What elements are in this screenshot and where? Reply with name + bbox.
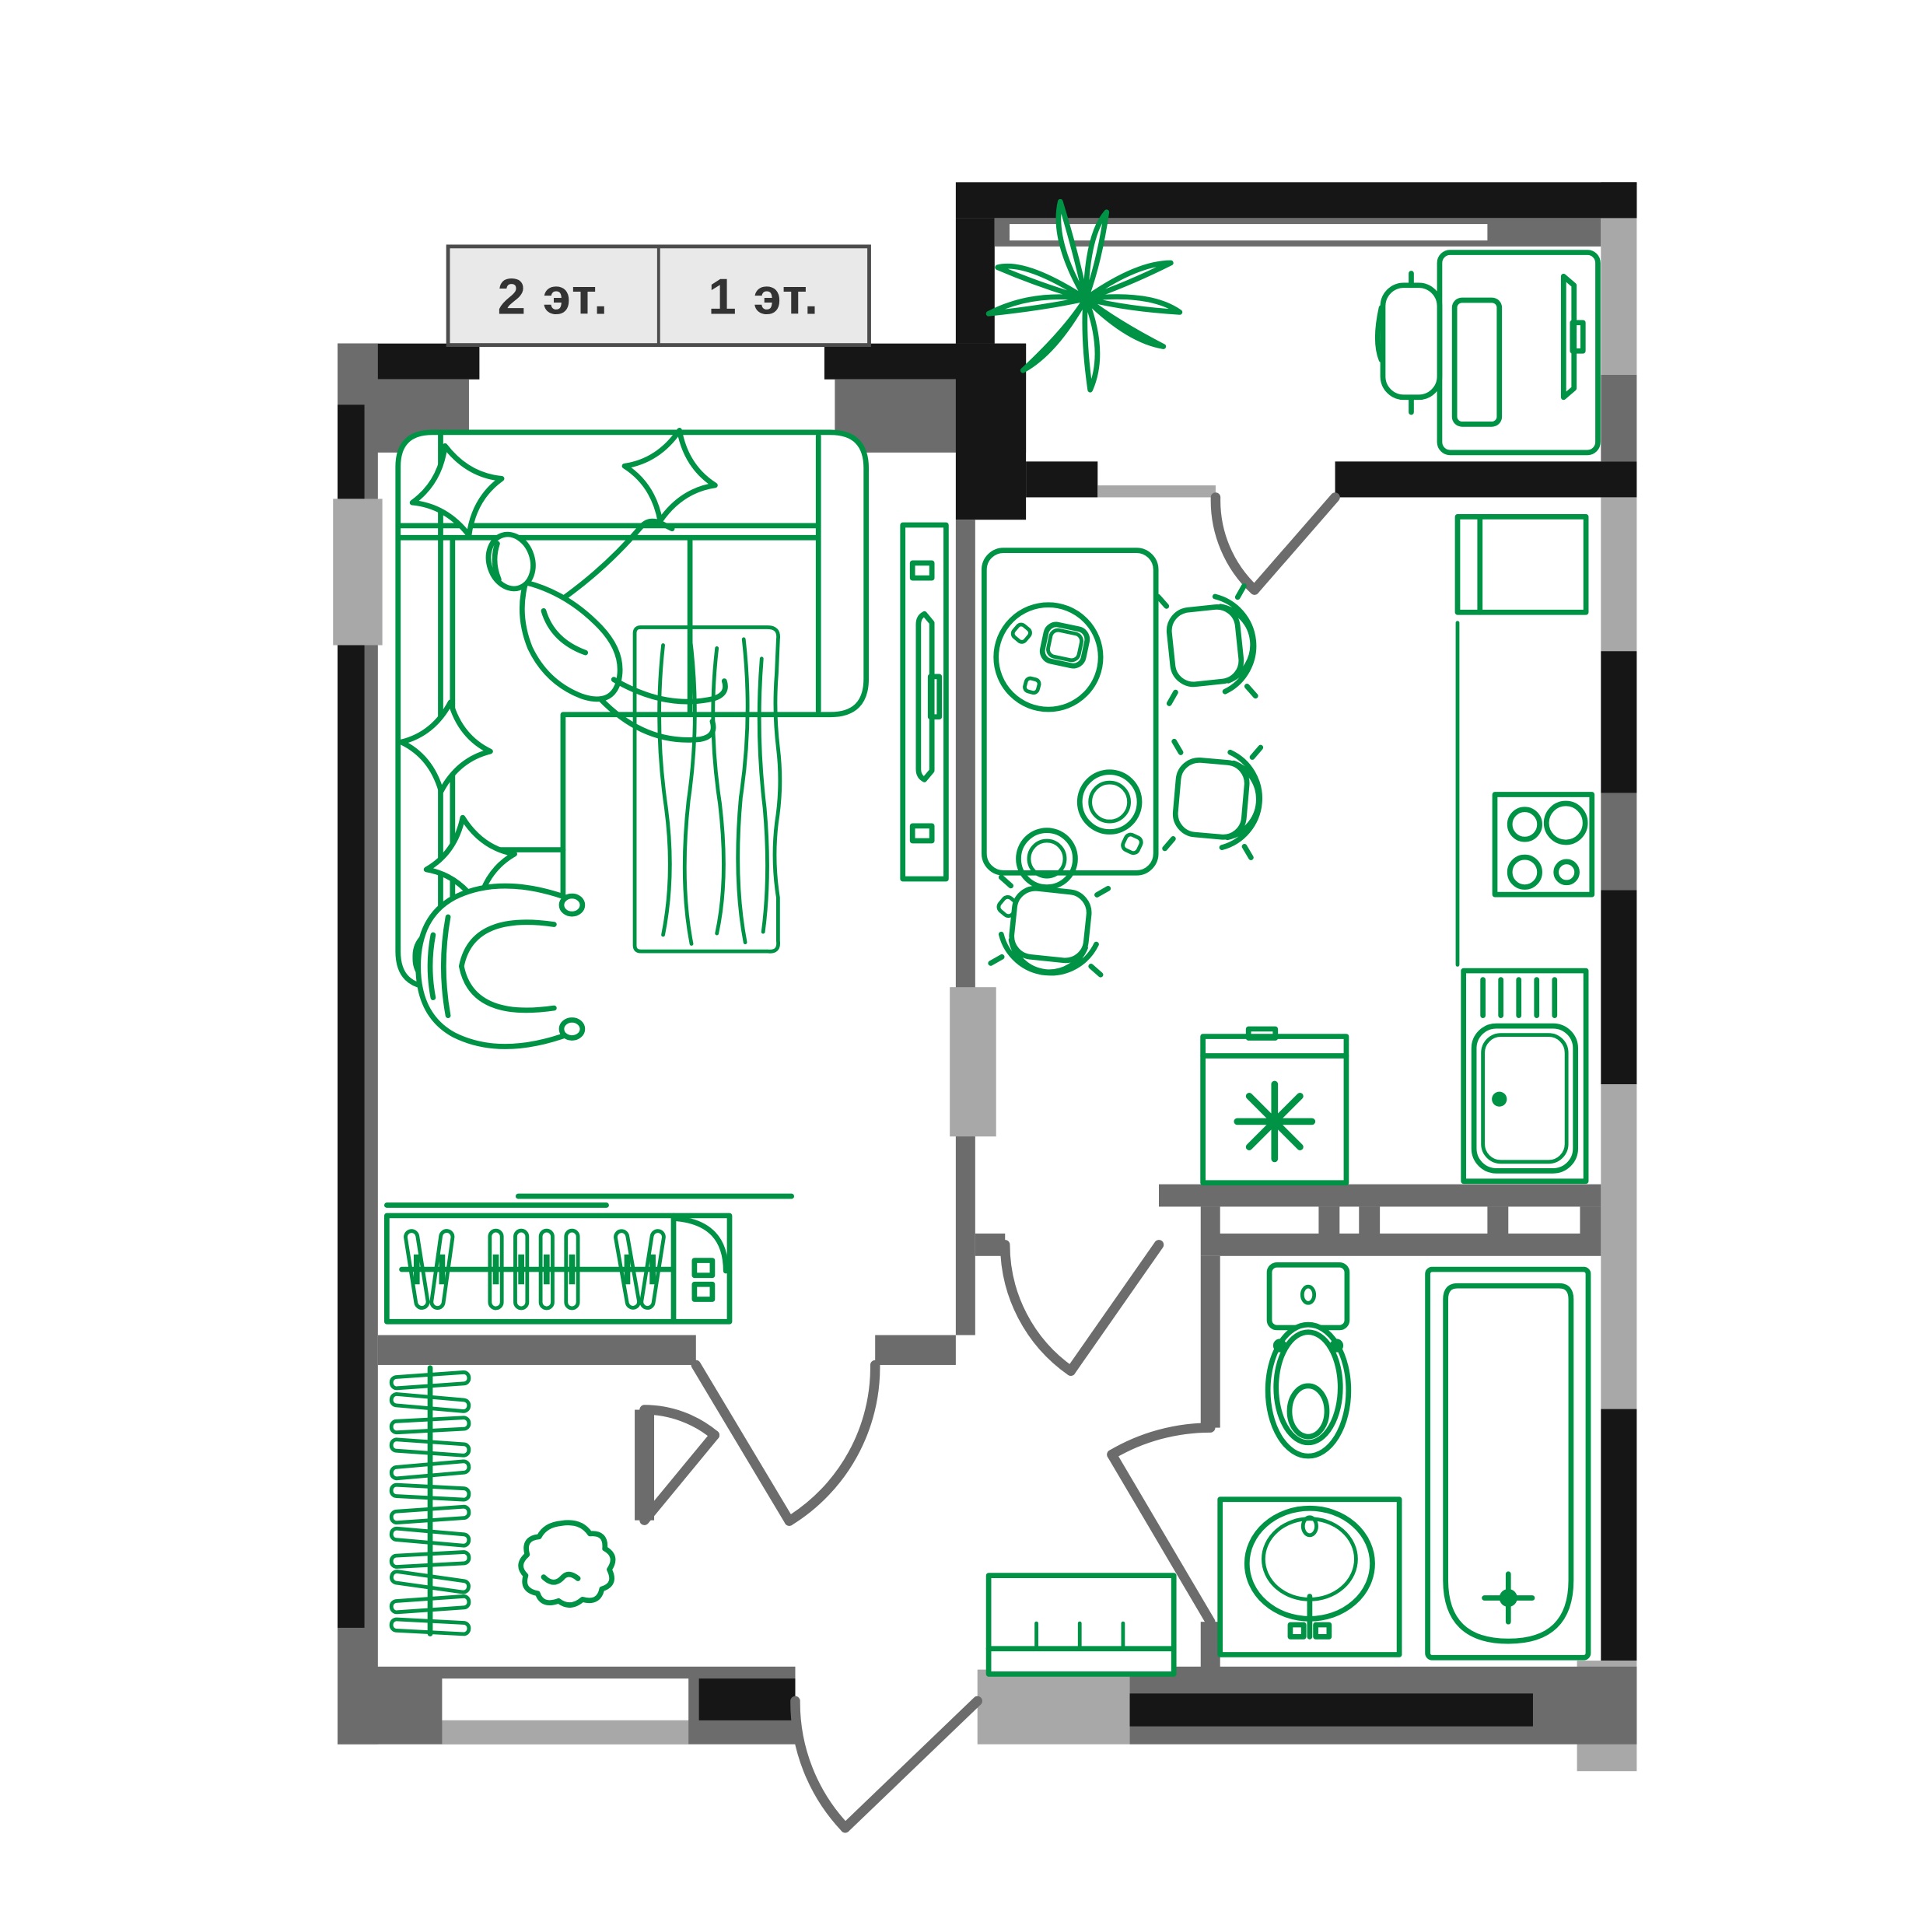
fridge: [1458, 516, 1586, 612]
bottom-left-sill: [442, 1720, 688, 1745]
partition-shaft-block: [950, 987, 996, 1136]
shaft-stub5: [1580, 1206, 1601, 1234]
right-wall-seg2: [1601, 793, 1636, 890]
closet-rack: [390, 1367, 469, 1633]
bathroom: [1220, 1265, 1587, 1657]
right-wall-seg1: [1601, 497, 1636, 651]
dining-table: [984, 550, 1156, 918]
bathroom-left-wall-upper: [1200, 1255, 1220, 1427]
right-wall-window2: [1601, 890, 1636, 1084]
kitchen-dining: [984, 516, 1591, 1182]
bottom-left-black: [698, 1678, 795, 1720]
kitchen-top-wall-left: [1026, 461, 1097, 497]
shaft-wall-upper: [1159, 1184, 1601, 1206]
kitchen-sink: [1463, 971, 1585, 1181]
pouf: [520, 1522, 612, 1605]
armchair: [418, 886, 582, 1046]
floor-plan-canvas: 2 эт. 1 эт.: [39, 39, 1894, 1894]
balcony-corner: [1601, 182, 1636, 218]
shaft-stub4: [1487, 1206, 1508, 1234]
right-wall-window3: [1601, 1409, 1636, 1661]
office-chair: [1377, 273, 1440, 412]
left-wall-black2: [338, 645, 365, 1627]
door-balcony: [1216, 497, 1335, 590]
door-closet: [644, 1409, 714, 1520]
shaft-stub1: [1200, 1206, 1220, 1234]
bottom-left-window: [442, 1678, 688, 1720]
washing-machine-star-icon: [1237, 1084, 1311, 1159]
floor-tab-2[interactable]: 2 эт.: [497, 268, 609, 324]
washing-machine: [1202, 1029, 1346, 1183]
balcony-wall-right-gray: [1601, 375, 1636, 461]
floor-selector: 2 эт. 1 эт.: [448, 247, 869, 345]
right-wall-seg3: [1601, 1084, 1636, 1409]
floor-tab-1[interactable]: 1 эт.: [708, 268, 820, 324]
balcony-wall-left: [956, 218, 995, 343]
door-entrance: [795, 1701, 977, 1828]
bathtub: [1427, 1269, 1587, 1657]
bathroom-top-wall: [1200, 1234, 1601, 1256]
balcony-desk: [1440, 252, 1598, 452]
entrance-threshold: [977, 1669, 1129, 1744]
stove: [1495, 794, 1592, 894]
door-kitchen-hall: [1005, 1244, 1159, 1370]
tv-unit: [902, 525, 946, 879]
shoe-bench: [989, 1575, 1174, 1674]
shaft-stub2: [1318, 1206, 1339, 1234]
bottom-right-black: [1129, 1693, 1532, 1726]
toilet: [1268, 1265, 1349, 1456]
living-bottom-wall-left: [378, 1335, 696, 1364]
right-wall-window1: [1601, 651, 1636, 793]
bathroom-left-wall-lower: [1200, 1622, 1220, 1669]
bath-sink: [1220, 1499, 1398, 1654]
living-bottom-wall-right: [875, 1335, 956, 1364]
wall-corner-block: [956, 343, 1026, 520]
wardrobe-hangers: [387, 1216, 730, 1321]
shaft-stub3: [1359, 1206, 1380, 1234]
floor-plan: 2 эт. 1 эт.: [39, 39, 1894, 1894]
hall: [989, 1575, 1174, 1674]
closet-wall: [635, 1409, 654, 1520]
partition-living-kitchen: [956, 520, 975, 1335]
dining-chair-2: [1164, 740, 1264, 858]
left-wall-black1: [338, 404, 365, 499]
dining-chair-1: [1157, 586, 1258, 705]
left-wall-pier: [333, 499, 382, 645]
kitchen-top-wall-right: [1335, 461, 1636, 497]
kitchen-window-sill: [1097, 485, 1216, 497]
balcony-wall-right-light: [1601, 218, 1636, 375]
door-living-hall: [695, 1365, 874, 1521]
living-room: [397, 421, 947, 1047]
dining-chair-3: [990, 877, 1109, 978]
balcony-window-strip: [1010, 224, 1487, 240]
